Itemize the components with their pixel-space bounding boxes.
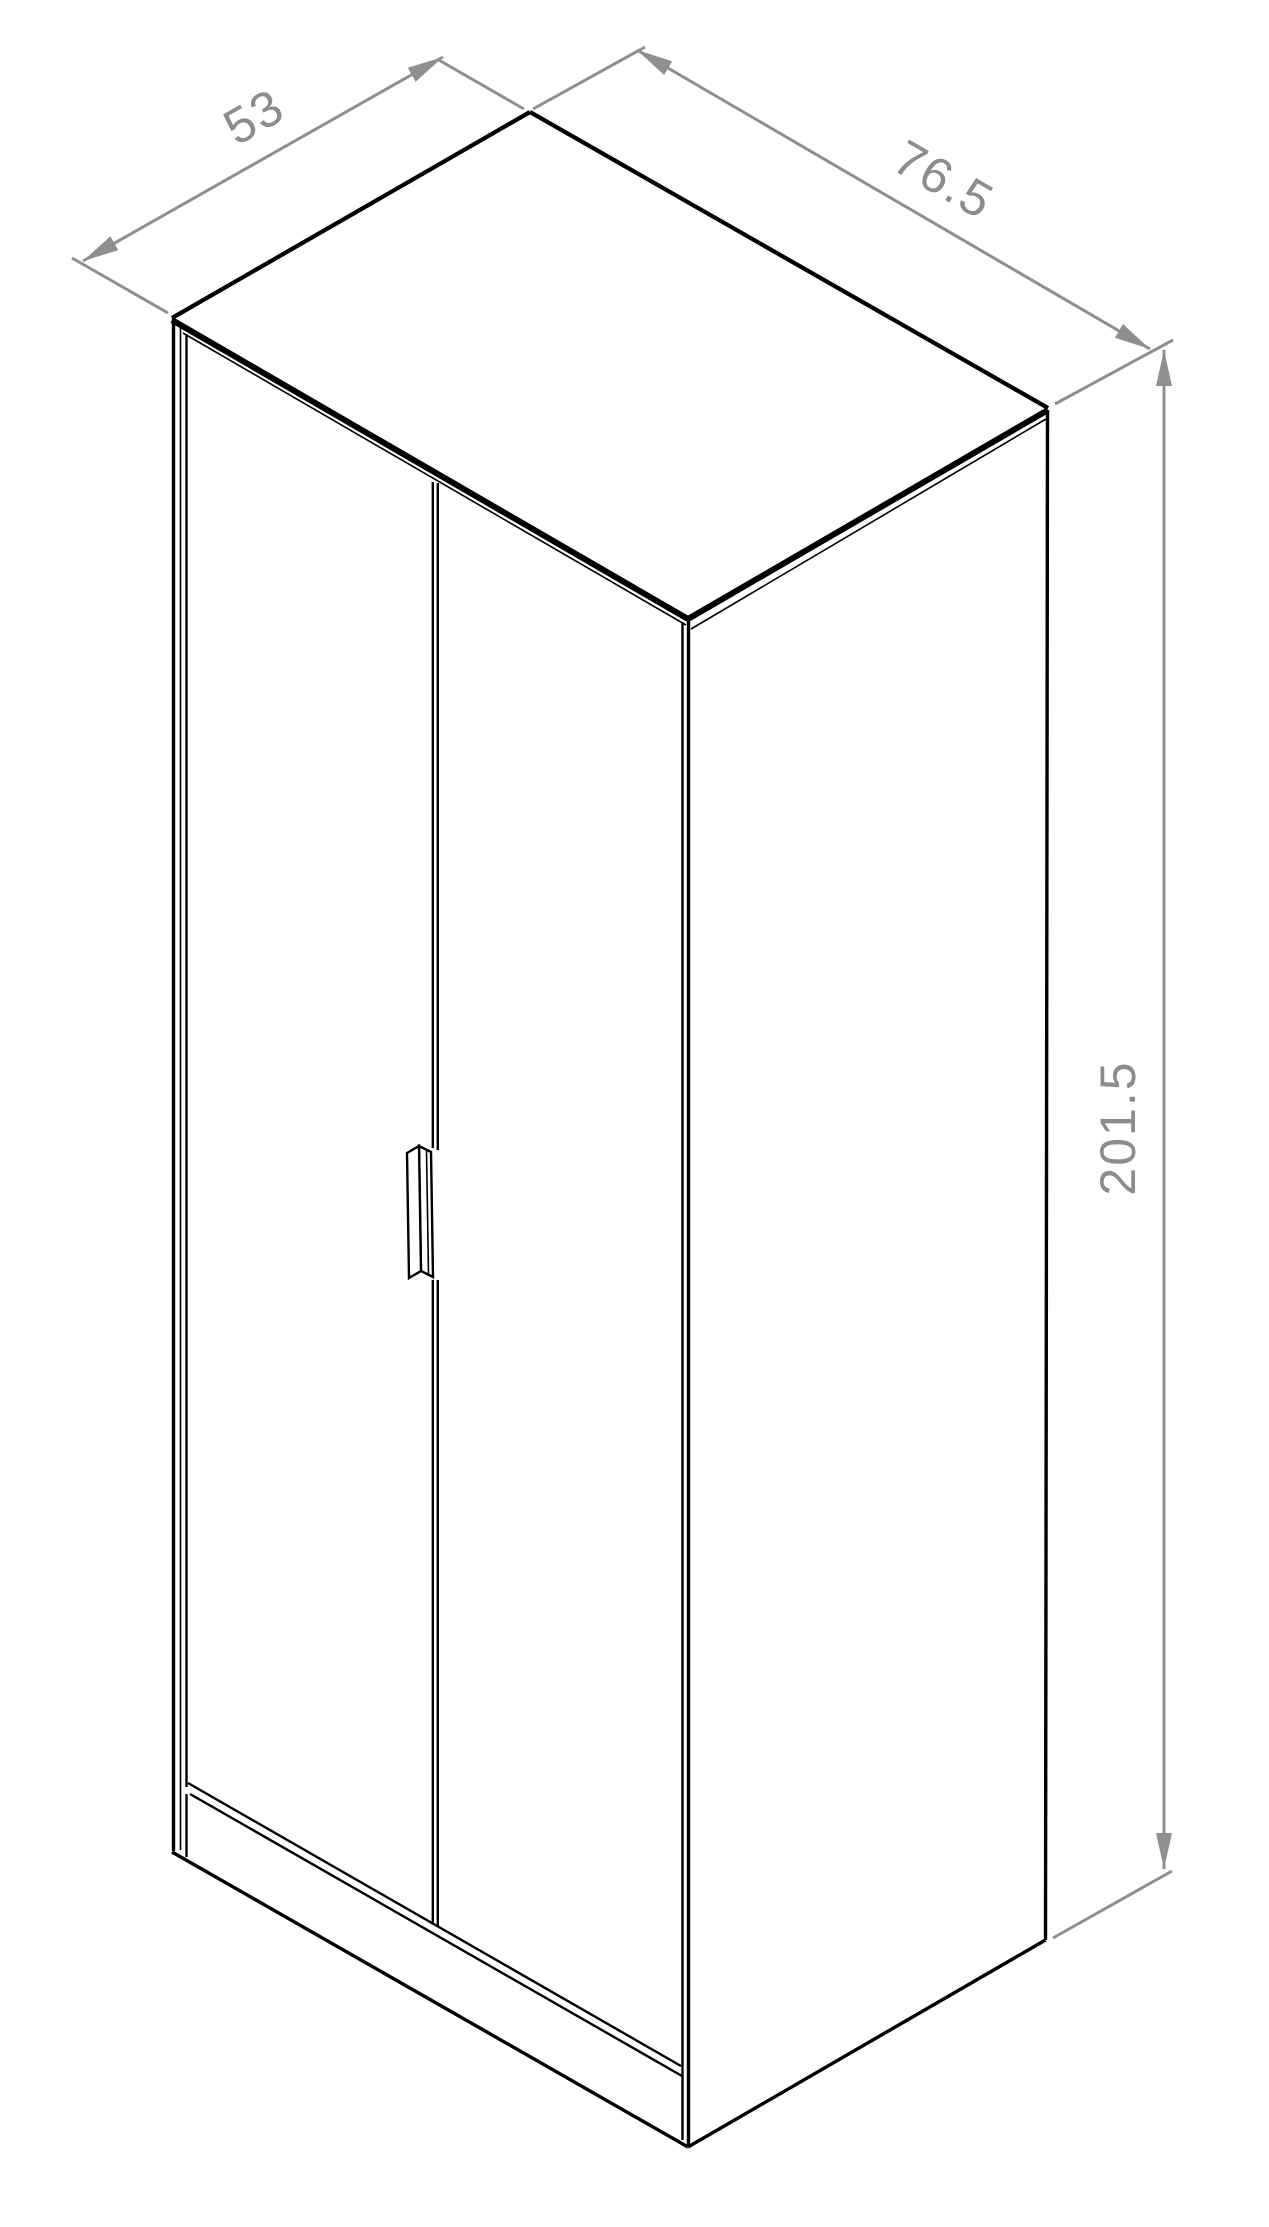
wardrobe-isometric-drawing: 53 76.5 201.5 [0, 0, 1269, 2227]
doors-bottom-edge-inner [190, 1794, 682, 2076]
right-side-panel [688, 410, 1048, 2147]
extension-line [1053, 1871, 1172, 1938]
top-panel-front-left-edge [172, 320, 688, 619]
dimension-line [637, 50, 1150, 349]
drawing-canvas: 53 76.5 201.5 [0, 0, 1269, 2227]
dimension-label: 201.5 [1090, 1060, 1146, 1195]
left-side-panel [174, 318, 181, 1851]
door-handle [407, 1146, 433, 1278]
handle-front-face [407, 1146, 421, 1278]
top-panel-front-right-edge [688, 410, 1048, 619]
depth-dimension: 53 [72, 57, 524, 313]
top-panel-back-left-edge [172, 112, 530, 318]
extension-line [437, 59, 524, 109]
doors-bottom-edge-outer [188, 1783, 681, 2066]
height-dimension: 201.5 [1053, 350, 1172, 1938]
top-panel-back-right-edge [530, 112, 1048, 408]
back-right-corner-edge [1046, 410, 1048, 1940]
width-dimension: 76.5 [533, 47, 1173, 404]
plinth-bottom-edge [172, 1852, 688, 2147]
front-doors [187, 334, 683, 2140]
plinth [172, 1794, 688, 2147]
extension-line [72, 258, 168, 313]
extension-line [1055, 340, 1173, 404]
extension-line [533, 47, 645, 109]
side-panel-bottom-edge [688, 1940, 1046, 2147]
side-panel-top-edge [691, 419, 1046, 629]
wardrobe [172, 112, 1048, 2147]
doors-top-edge [183, 333, 686, 625]
dimension-label: 53 [214, 78, 294, 156]
dimension-annotations: 53 76.5 201.5 [72, 47, 1173, 1938]
dimension-label: 76.5 [884, 129, 1003, 230]
